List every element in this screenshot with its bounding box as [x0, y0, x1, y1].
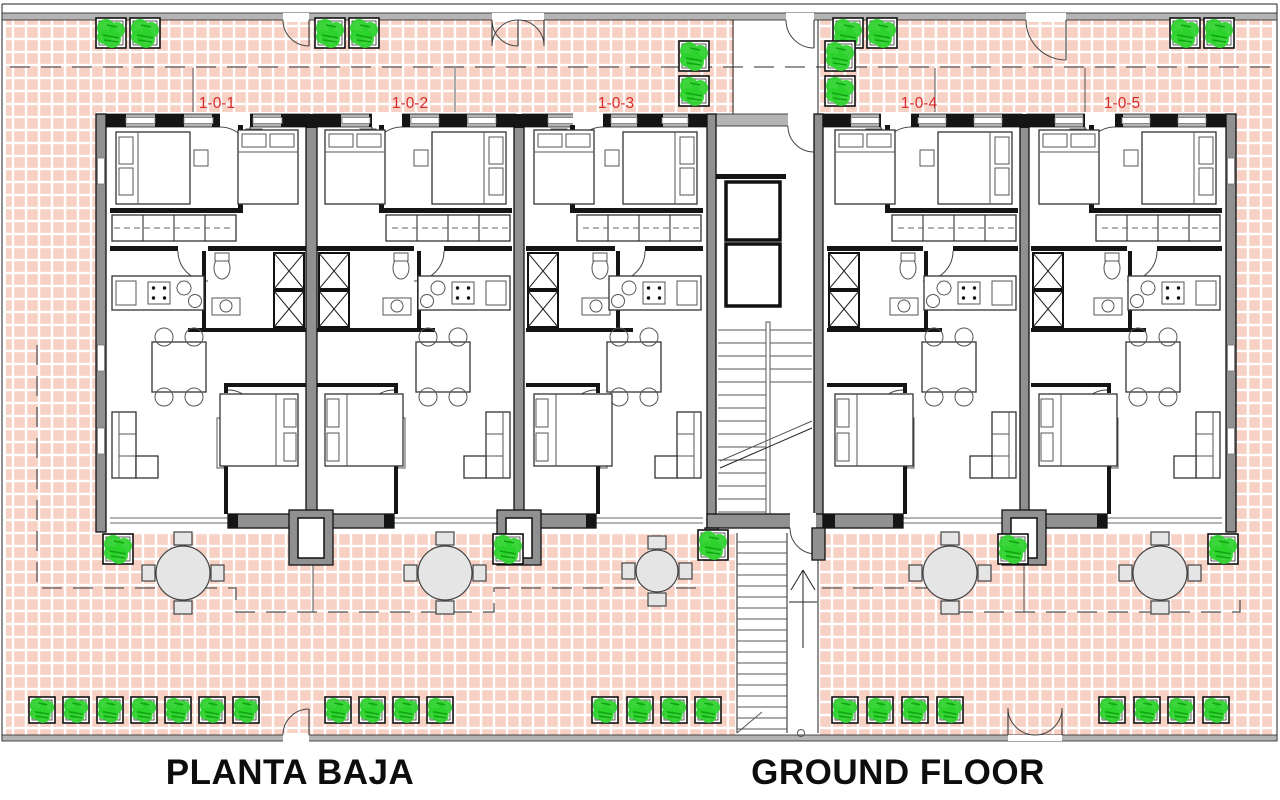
plant-icon	[1170, 18, 1200, 48]
plant-icon	[427, 697, 453, 723]
plant-icon	[393, 697, 419, 723]
plant-icon	[698, 530, 728, 560]
plant-icon	[233, 697, 259, 723]
plant-icon	[825, 41, 855, 71]
caption-planta-baja: PLANTA BAJA	[166, 753, 415, 792]
plant-icon	[1099, 697, 1125, 723]
plant-icon	[130, 18, 160, 48]
plant-icon	[679, 76, 709, 106]
plant-icon	[832, 697, 858, 723]
plant-icon	[103, 534, 133, 564]
unit-label: 1-0-3	[598, 95, 634, 112]
plant-icon	[199, 697, 225, 723]
plant-icon	[325, 697, 351, 723]
unit-label: 1-0-4	[901, 95, 938, 112]
plant-icon	[349, 18, 379, 48]
plant-icon	[97, 697, 123, 723]
plant-icon	[867, 697, 893, 723]
plant-icon	[1204, 18, 1234, 48]
plant-icon	[29, 697, 55, 723]
plant-icon	[165, 697, 191, 723]
plant-icon	[493, 534, 523, 564]
floor-plan-svg: 1-0-11-0-21-0-31-0-41-0-5 PLANTA BAJA GR…	[0, 0, 1280, 800]
plant-icon	[998, 534, 1028, 564]
plant-icon	[1168, 697, 1194, 723]
unit-label: 1-0-1	[199, 95, 235, 112]
floor-plan: 1-0-11-0-21-0-31-0-41-0-5 PLANTA BAJA GR…	[0, 0, 1280, 800]
unit-label: 1-0-5	[1104, 95, 1140, 112]
plant-icon	[1203, 697, 1229, 723]
plant-icon	[592, 697, 618, 723]
plant-icon	[902, 697, 928, 723]
plant-icon	[96, 18, 126, 48]
plant-icon	[937, 697, 963, 723]
plant-icon	[695, 697, 721, 723]
plant-icon	[131, 697, 157, 723]
plant-icon	[359, 697, 385, 723]
caption-ground-floor: GROUND FLOOR	[751, 753, 1045, 792]
plant-icon	[867, 18, 897, 48]
plant-icon	[627, 697, 653, 723]
plant-icon	[825, 76, 855, 106]
plant-icon	[315, 18, 345, 48]
plant-icon	[63, 697, 89, 723]
plant-icon	[679, 41, 709, 71]
plant-icon	[1134, 697, 1160, 723]
unit-label: 1-0-2	[392, 95, 428, 112]
plant-icon	[661, 697, 687, 723]
plant-icon	[1208, 534, 1238, 564]
